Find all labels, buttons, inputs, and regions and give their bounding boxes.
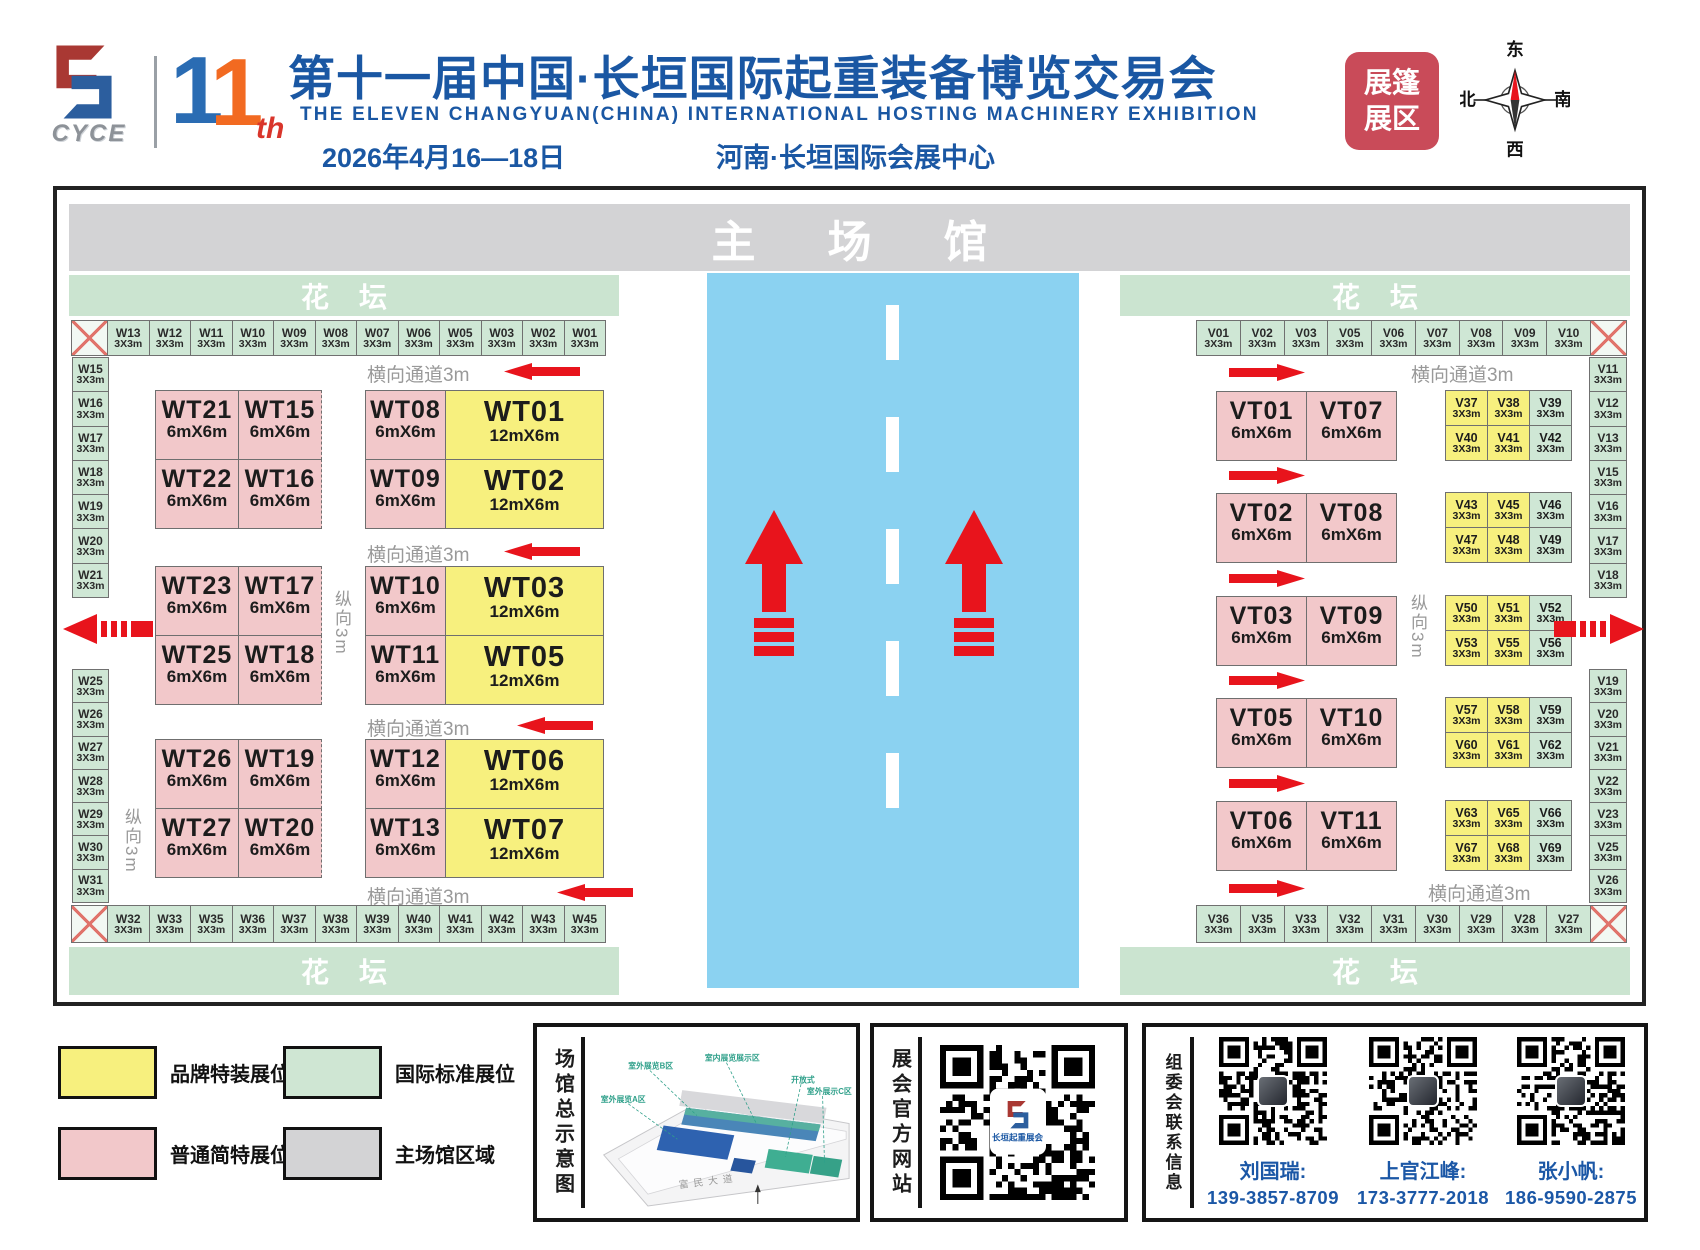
standard-booth-cell: W433X3m bbox=[522, 905, 565, 943]
standard-booth-cell: W073X3m bbox=[356, 320, 399, 356]
booth-cell: WT256mX6m bbox=[155, 635, 239, 705]
booth-cell: VT026mX6m bbox=[1216, 493, 1307, 563]
legend-label: 主场馆区域 bbox=[395, 1139, 495, 1168]
aisle-label: 横向通道3m bbox=[1428, 879, 1530, 906]
standard-booth-cell: W013X3m bbox=[564, 320, 607, 356]
aisle-label: 横向通道3m bbox=[1411, 360, 1513, 387]
contact-name: 刘国瑞: bbox=[1200, 1155, 1346, 1184]
booth-cell: WT0512mX6m bbox=[445, 635, 604, 705]
booth-cell: V503X3m bbox=[1445, 595, 1488, 631]
booth-cell: VT106mX6m bbox=[1306, 698, 1397, 768]
standard-booth-cell: V353X3m bbox=[1240, 905, 1285, 943]
svg-text:开放式: 开放式 bbox=[791, 1074, 815, 1084]
panel-title: 展会官方网站 bbox=[882, 1037, 922, 1208]
booth-cell: V593X3m bbox=[1529, 697, 1572, 733]
standard-booth-cell: W083X3m bbox=[315, 320, 358, 356]
legend-item: 国际标准展位 bbox=[283, 1046, 508, 1099]
standard-booth-cell: W253X3m bbox=[72, 669, 109, 703]
flower-bed: 花坛 bbox=[69, 947, 619, 995]
aisle-label: 横向通道3m bbox=[367, 540, 469, 567]
flower-bed: 花坛 bbox=[69, 275, 619, 316]
standard-booth-cell: W293X3m bbox=[72, 802, 109, 836]
standard-booth-cell: V293X3m bbox=[1459, 905, 1504, 943]
standard-booth-cell: W283X3m bbox=[72, 769, 109, 803]
standard-booth-cell: V163X3m bbox=[1589, 494, 1627, 529]
booth-cell: WT106mX6m bbox=[365, 566, 446, 636]
venue-map: 主场馆 花坛 花坛 花坛 花坛 W133X3mW123X3mW113X3mW10… bbox=[53, 186, 1646, 1006]
standard-booth-cell: W193X3m bbox=[72, 494, 109, 529]
booth-cell: VT096mX6m bbox=[1306, 596, 1397, 666]
legend-swatch bbox=[58, 1046, 157, 1099]
standard-booth-cell: V133X3m bbox=[1589, 426, 1627, 461]
booth-cell: V403X3m bbox=[1445, 425, 1488, 461]
right-arrow-icon bbox=[1229, 467, 1305, 489]
booth-cell: V423X3m bbox=[1529, 425, 1572, 461]
booth-cell: V383X3m bbox=[1487, 390, 1530, 426]
standard-booth-cell: W263X3m bbox=[72, 702, 109, 736]
v-booth-grid: V633X3mV653X3mV663X3mV673X3mV683X3mV693X… bbox=[1446, 801, 1572, 871]
legend-swatch bbox=[58, 1127, 157, 1180]
booth-cell: WT0712mX6m bbox=[445, 808, 604, 878]
standard-booth-cell: V083X3m bbox=[1459, 320, 1504, 356]
zone-badge-line: 展篷 bbox=[1364, 65, 1420, 101]
standard-booth-cell: V203X3m bbox=[1589, 702, 1627, 736]
contact-avatar bbox=[1407, 1075, 1439, 1107]
booth-cell: V553X3m bbox=[1487, 630, 1530, 666]
v-booth-grid: V373X3mV383X3mV393X3mV403X3mV413X3mV423X… bbox=[1446, 391, 1572, 461]
booth-cell: V603X3m bbox=[1445, 732, 1488, 768]
booth-cell: V623X3m bbox=[1529, 732, 1572, 768]
svg-text:室内展览展示区: 室内展览展示区 bbox=[705, 1053, 760, 1063]
site-map-panel: 场馆总示意图 室外展览B区 室内展览展示区 开放式 室外展示C区 室外展览A区 bbox=[533, 1023, 860, 1222]
legend-item: 普通简特展位 bbox=[58, 1127, 283, 1180]
standard-booth-cell: W183X3m bbox=[72, 460, 109, 495]
standard-booth-cell: V153X3m bbox=[1589, 460, 1627, 495]
booth-cell: V673X3m bbox=[1445, 835, 1488, 871]
legend-label: 品牌特装展位 bbox=[170, 1058, 290, 1087]
standard-booth-cell: V013X3m bbox=[1196, 320, 1241, 356]
contact-avatar bbox=[1555, 1075, 1587, 1107]
booth-cell: V613X3m bbox=[1487, 732, 1530, 768]
qr-caption: 长垣起重展会 bbox=[992, 1131, 1043, 1143]
qr-center-logo: 长垣起重展会 bbox=[990, 1088, 1046, 1154]
standard-booth-cell: V223X3m bbox=[1589, 769, 1627, 803]
right-arrow-icon bbox=[1229, 775, 1305, 797]
standard-booth-cell bbox=[71, 905, 108, 943]
standard-booth-cell: W113X3m bbox=[190, 320, 233, 356]
standard-booth-cell bbox=[71, 320, 108, 356]
road-divider-line bbox=[886, 305, 899, 865]
right-arrow-icon bbox=[1229, 364, 1305, 386]
edition-suffix: th bbox=[256, 112, 284, 146]
standard-booth-cell: W323X3m bbox=[107, 905, 150, 943]
booth-cell: V693X3m bbox=[1529, 835, 1572, 871]
booth-cell: WT0112mX6m bbox=[445, 390, 604, 460]
website-qr-code: 长垣起重展会 bbox=[940, 1045, 1095, 1200]
standard-booth-cell: V053X3m bbox=[1327, 320, 1372, 356]
booth-col-right-upper: V113X3mV123X3mV133X3mV153X3mV163X3mV173X… bbox=[1589, 358, 1627, 598]
standard-booth-cell: V093X3m bbox=[1502, 320, 1547, 356]
contact-phone: 186-9590-2875 bbox=[1498, 1187, 1644, 1209]
svg-text:南: 南 bbox=[1554, 89, 1570, 109]
svg-text:北: 北 bbox=[1460, 89, 1476, 109]
booth-cell: V573X3m bbox=[1445, 697, 1488, 733]
booth-cell: WT0612mX6m bbox=[445, 739, 604, 809]
standard-booth-cell: W213X3m bbox=[72, 563, 109, 598]
contact-name: 上官江峰: bbox=[1350, 1155, 1496, 1184]
panel-title: 组委会联系信息 bbox=[1154, 1037, 1194, 1208]
contact-qr-code bbox=[1219, 1037, 1327, 1145]
standard-booth-cell: W373X3m bbox=[273, 905, 316, 943]
standard-booth-cell: W203X3m bbox=[72, 528, 109, 563]
booth-cell: V583X3m bbox=[1487, 697, 1530, 733]
standard-booth-cell: V283X3m bbox=[1502, 905, 1547, 943]
standard-booth-cell: V213X3m bbox=[1589, 736, 1627, 770]
booth-cell: V683X3m bbox=[1487, 835, 1530, 871]
booth-cell: V513X3m bbox=[1487, 595, 1530, 631]
standard-booth-cell: W033X3m bbox=[481, 320, 524, 356]
standard-booth-cell: W423X3m bbox=[481, 905, 524, 943]
booth-col-right-lower: V193X3mV203X3mV213X3mV223X3mV233X3mV253X… bbox=[1589, 670, 1627, 903]
zone-badge: 展篷 展区 bbox=[1345, 52, 1439, 150]
standard-booth-cell: W393X3m bbox=[356, 905, 399, 943]
edition-logo: 1 1 th bbox=[170, 36, 300, 166]
standard-booth-cell: V103X3m bbox=[1546, 320, 1591, 356]
booth-cell: WT236mX6m bbox=[155, 566, 239, 636]
standard-booth-cell: W363X3m bbox=[232, 905, 275, 943]
standard-booth-cell: V363X3m bbox=[1196, 905, 1241, 943]
booth-row-top-left: W133X3mW123X3mW113X3mW103X3mW093X3mW083X… bbox=[72, 320, 606, 356]
event-date: 2026年4月16—18日 bbox=[322, 136, 565, 175]
booth-cell: WT156mX6m bbox=[238, 390, 322, 460]
exit-arrow-left-icon bbox=[63, 614, 157, 649]
booth-row-top-right: V013X3mV023X3mV033X3mV053X3mV063X3mV073X… bbox=[1197, 320, 1627, 356]
exit-arrow-right-icon bbox=[1550, 614, 1644, 649]
standard-booth-cell: V063X3m bbox=[1371, 320, 1416, 356]
standard-booth-cell: W133X3m bbox=[107, 320, 150, 356]
legend-item: 品牌特装展位 bbox=[58, 1046, 283, 1099]
right-arrow-icon bbox=[1229, 880, 1305, 902]
standard-booth-cell: W163X3m bbox=[72, 391, 109, 426]
contact-phone: 139-3857-8709 bbox=[1200, 1187, 1346, 1209]
contact-qr-code bbox=[1369, 1037, 1477, 1145]
booth-cell: V413X3m bbox=[1487, 425, 1530, 461]
booth-cell: V393X3m bbox=[1529, 390, 1572, 426]
standard-booth-cell: V193X3m bbox=[1589, 669, 1627, 703]
page-subtitle: THE ELEVEN CHANGYUAN(CHINA) INTERNATIONA… bbox=[300, 104, 1340, 126]
site-map-illustration: 室外展览B区 室内展览展示区 开放式 室外展示C区 室外展览A区 富民大道 bbox=[589, 1029, 854, 1216]
booth-cell: WT096mX6m bbox=[365, 459, 446, 529]
standard-booth-cell: W063X3m bbox=[398, 320, 441, 356]
website-panel: 展会官方网站 长垣起重展会 bbox=[870, 1023, 1128, 1222]
standard-booth-cell: W053X3m bbox=[439, 320, 482, 356]
standard-booth-cell: W403X3m bbox=[398, 905, 441, 943]
booth-row-bottom-right: V363X3mV353X3mV333X3mV323X3mV313X3mV303X… bbox=[1197, 905, 1627, 943]
svg-text:室外展览B区: 室外展览B区 bbox=[628, 1061, 673, 1071]
v-booth-grid: V433X3mV453X3mV463X3mV473X3mV483X3mV493X… bbox=[1446, 493, 1572, 563]
aisle-label-vertical: 纵向3m bbox=[329, 590, 354, 656]
standard-booth-cell: V073X3m bbox=[1415, 320, 1460, 356]
event-venue: 河南·长垣国际会展中心 bbox=[716, 136, 995, 175]
booth-cell: WT116mX6m bbox=[365, 635, 446, 705]
svg-text:室外展示C区: 室外展示C区 bbox=[807, 1086, 852, 1096]
booth-cell: VT076mX6m bbox=[1306, 391, 1397, 461]
left-arrow-icon bbox=[557, 884, 633, 906]
booth-cell: VT016mX6m bbox=[1216, 391, 1307, 461]
booth-cell: WT226mX6m bbox=[155, 459, 239, 529]
standard-booth-cell: W023X3m bbox=[522, 320, 565, 356]
aisle-label-vertical: 纵向3m bbox=[119, 808, 144, 874]
booth-cell: WT176mX6m bbox=[238, 566, 322, 636]
right-arrow-icon bbox=[1229, 570, 1305, 592]
legend-swatch bbox=[283, 1127, 382, 1180]
legend-swatch bbox=[283, 1046, 382, 1099]
booth-cell: WT136mX6m bbox=[365, 808, 446, 878]
booth-cell: WT0312mX6m bbox=[445, 566, 604, 636]
panel-title: 场馆总示意图 bbox=[545, 1037, 585, 1208]
booth-cell: VT056mX6m bbox=[1216, 698, 1307, 768]
standard-booth-cell: W413X3m bbox=[439, 905, 482, 943]
booth-cell: V633X3m bbox=[1445, 800, 1488, 836]
main-hall-bar: 主场馆 bbox=[69, 204, 1630, 271]
up-arrow-icon bbox=[945, 510, 1003, 658]
left-arrow-icon bbox=[504, 363, 580, 385]
standard-booth-cell: W273X3m bbox=[72, 736, 109, 770]
legend: 品牌特装展位 国际标准展位 普通简特展位 主场馆区域 bbox=[58, 1046, 528, 1180]
contact-card: 张小帆: 186-9590-2875 bbox=[1498, 1037, 1644, 1209]
standard-booth-cell: W123X3m bbox=[149, 320, 192, 356]
cyce-logo-icon bbox=[38, 42, 130, 122]
booth-row-bottom-left: W323X3mW333X3mW353X3mW363X3mW373X3mW383X… bbox=[72, 905, 606, 943]
standard-booth-cell: V253X3m bbox=[1589, 835, 1627, 869]
standard-booth-cell: V233X3m bbox=[1589, 802, 1627, 836]
standard-booth-cell bbox=[1590, 905, 1627, 943]
standard-booth-cell: W103X3m bbox=[232, 320, 275, 356]
page-title: 第十一届中国·长垣国际起重装备博览交易会 bbox=[288, 40, 1348, 109]
booth-cell: V533X3m bbox=[1445, 630, 1488, 666]
booth-cell: V473X3m bbox=[1445, 527, 1488, 563]
booth-cell: WT206mX6m bbox=[238, 808, 322, 878]
standard-booth-cell: V033X3m bbox=[1284, 320, 1329, 356]
booth-cell: V453X3m bbox=[1487, 492, 1530, 528]
flower-bed: 花坛 bbox=[1120, 275, 1630, 316]
contact-phone: 173-3777-2018 bbox=[1350, 1187, 1496, 1209]
standard-booth-cell: V183X3m bbox=[1589, 563, 1627, 598]
standard-booth-cell: W093X3m bbox=[273, 320, 316, 356]
standard-booth-cell: W313X3m bbox=[72, 869, 109, 903]
legend-item: 主场馆区域 bbox=[283, 1127, 508, 1180]
standard-booth-cell bbox=[1590, 320, 1627, 356]
standard-booth-cell: V323X3m bbox=[1327, 905, 1372, 943]
standard-booth-cell: V173X3m bbox=[1589, 528, 1627, 563]
flower-bed: 花坛 bbox=[1120, 947, 1630, 995]
booth-cell: VT086mX6m bbox=[1306, 493, 1397, 563]
booth-cell: WT216mX6m bbox=[155, 390, 239, 460]
booth-cell: V483X3m bbox=[1487, 527, 1530, 563]
booth-cell: VT066mX6m bbox=[1216, 801, 1307, 871]
contact-avatar bbox=[1257, 1075, 1289, 1107]
standard-booth-cell: W173X3m bbox=[72, 426, 109, 461]
aisle-label: 横向通道3m bbox=[367, 882, 469, 909]
header: CYCE 1 1 th 第十一届中国·长垣国际起重装备博览交易会 THE ELE… bbox=[0, 0, 1700, 186]
svg-text:东: 东 bbox=[1506, 40, 1523, 59]
booth-cell: V433X3m bbox=[1445, 492, 1488, 528]
booth-col-left-lower: W253X3mW263X3mW273X3mW283X3mW293X3mW303X… bbox=[72, 670, 109, 903]
legend-label: 普通简特展位 bbox=[170, 1139, 290, 1168]
standard-booth-cell: V303X3m bbox=[1415, 905, 1460, 943]
booth-cell: V653X3m bbox=[1487, 800, 1530, 836]
booth-cell: WT086mX6m bbox=[365, 390, 446, 460]
logo-wordmark: CYCE bbox=[34, 120, 144, 148]
standard-booth-cell: V023X3m bbox=[1240, 320, 1285, 356]
standard-booth-cell: W383X3m bbox=[315, 905, 358, 943]
aisle-label: 横向通道3m bbox=[367, 360, 469, 387]
booth-cell: V463X3m bbox=[1529, 492, 1572, 528]
booth-cell: WT196mX6m bbox=[238, 739, 322, 809]
zone-badge-line: 展区 bbox=[1364, 101, 1420, 137]
standard-booth-cell: V123X3m bbox=[1589, 391, 1627, 426]
booth-cell: WT266mX6m bbox=[155, 739, 239, 809]
right-arrow-icon bbox=[1229, 672, 1305, 694]
booth-cell: WT126mX6m bbox=[365, 739, 446, 809]
standard-booth-cell: W303X3m bbox=[72, 835, 109, 869]
left-arrow-icon bbox=[517, 717, 593, 739]
aisle-label: 横向通道3m bbox=[367, 714, 469, 741]
contacts-panel: 组委会联系信息 刘国瑞: 139-3857-8709 上官江峰: 173-377… bbox=[1142, 1023, 1648, 1222]
booth-cell: WT166mX6m bbox=[238, 459, 322, 529]
contact-card: 刘国瑞: 139-3857-8709 bbox=[1200, 1037, 1346, 1209]
booth-cell: WT0212mX6m bbox=[445, 459, 604, 529]
standard-booth-cell: V113X3m bbox=[1589, 357, 1627, 392]
standard-booth-cell: W333X3m bbox=[149, 905, 192, 943]
left-arrow-icon bbox=[504, 543, 580, 565]
contact-qr-code bbox=[1517, 1037, 1625, 1145]
booth-col-left-upper: W153X3mW163X3mW173X3mW183X3mW193X3mW203X… bbox=[72, 358, 109, 598]
standard-booth-cell: V333X3m bbox=[1284, 905, 1329, 943]
svg-text:西: 西 bbox=[1506, 140, 1523, 160]
booth-cell: VT036mX6m bbox=[1216, 596, 1307, 666]
header-divider bbox=[154, 56, 157, 148]
compass-icon: 东 南 西 北 bbox=[1460, 40, 1570, 160]
standard-booth-cell: V263X3m bbox=[1589, 869, 1627, 903]
booth-cell: V663X3m bbox=[1529, 800, 1572, 836]
booth-cell: V493X3m bbox=[1529, 527, 1572, 563]
v-booth-grid: V573X3mV583X3mV593X3mV603X3mV613X3mV623X… bbox=[1446, 698, 1572, 768]
booth-cell: V373X3m bbox=[1445, 390, 1488, 426]
booth-cell: WT186mX6m bbox=[238, 635, 322, 705]
booth-cell: WT276mX6m bbox=[155, 808, 239, 878]
standard-booth-cell: V313X3m bbox=[1371, 905, 1416, 943]
standard-booth-cell: W353X3m bbox=[190, 905, 233, 943]
booth-cell: VT116mX6m bbox=[1306, 801, 1397, 871]
contact-card: 上官江峰: 173-3777-2018 bbox=[1350, 1037, 1496, 1209]
legend-label: 国际标准展位 bbox=[395, 1058, 515, 1087]
svg-text:室外展览A区: 室外展览A区 bbox=[601, 1094, 646, 1104]
up-arrow-icon bbox=[745, 510, 803, 658]
aisle-label-vertical: 纵向3m bbox=[1405, 594, 1430, 660]
standard-booth-cell: W153X3m bbox=[72, 357, 109, 392]
standard-booth-cell: W453X3m bbox=[564, 905, 607, 943]
contact-name: 张小帆: bbox=[1498, 1155, 1644, 1184]
standard-booth-cell: V273X3m bbox=[1546, 905, 1591, 943]
